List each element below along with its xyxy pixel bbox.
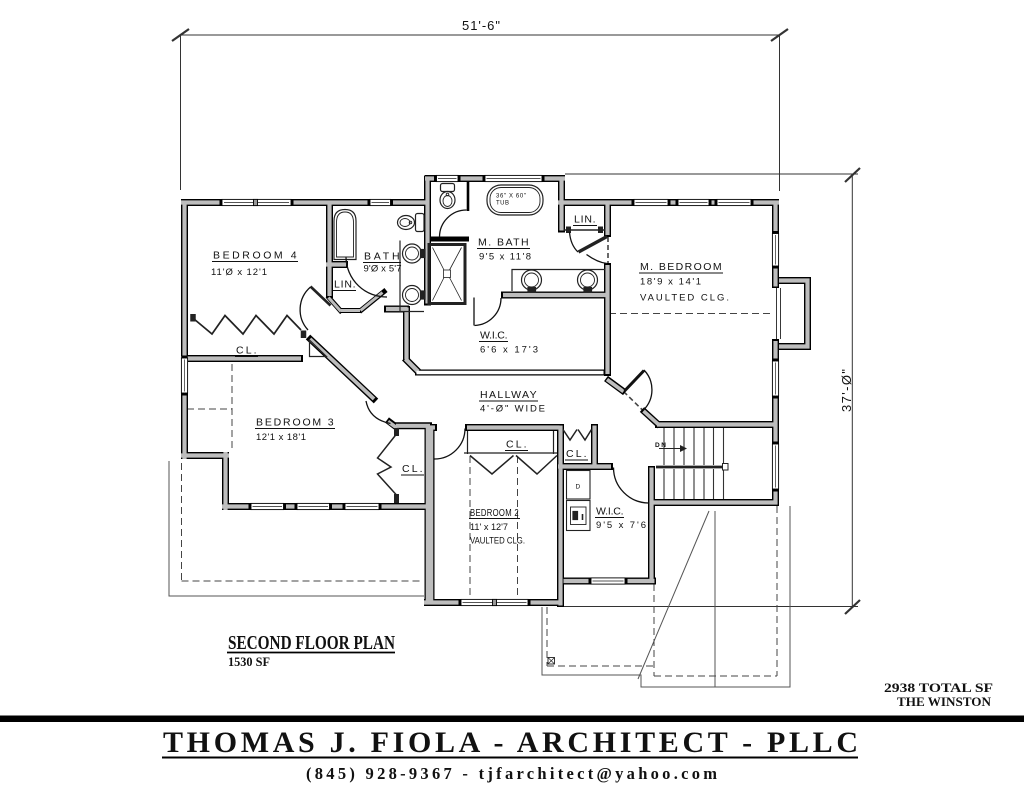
svg-text:CL.: CL. — [236, 345, 257, 357]
svg-text:LIN.: LIN. — [334, 279, 356, 291]
svg-text:THE WINSTON: THE WINSTON — [897, 694, 992, 709]
svg-text:9'Ø x 5'7: 9'Ø x 5'7 — [364, 264, 402, 275]
svg-text:11'Ø x 12'1: 11'Ø x 12'1 — [211, 267, 267, 278]
svg-text:DN: DN — [655, 442, 666, 449]
svg-text:BEDROOM 3: BEDROOM 3 — [256, 417, 334, 429]
svg-text:11' x 12'7: 11' x 12'7 — [470, 522, 508, 533]
svg-text:6'6 x 17'3: 6'6 x 17'3 — [480, 345, 538, 356]
svg-text:CL.: CL. — [402, 463, 423, 475]
svg-text:9'5 x 7'6: 9'5 x 7'6 — [596, 520, 646, 531]
svg-text:SECOND FLOOR PLAN: SECOND FLOOR PLAN — [228, 632, 395, 654]
svg-text:37'-Ø": 37'-Ø" — [839, 369, 854, 412]
svg-text:VAULTED CLG.: VAULTED CLG. — [470, 536, 525, 547]
svg-text:51'-6": 51'-6" — [462, 18, 500, 33]
svg-text:BEDROOM 2: BEDROOM 2 — [470, 507, 519, 519]
svg-text:HALLWAY: HALLWAY — [480, 389, 537, 401]
svg-text:2938 TOTAL SF: 2938 TOTAL SF — [884, 680, 993, 695]
svg-text:W.I.C.: W.I.C. — [480, 330, 508, 342]
svg-text:CL.: CL. — [566, 448, 587, 460]
svg-text:12'1 x 18'1: 12'1 x 18'1 — [256, 432, 306, 443]
svg-text:BEDROOM 4: BEDROOM 4 — [213, 250, 297, 262]
svg-text:W.I.C.: W.I.C. — [596, 506, 624, 518]
svg-text:1530 SF: 1530 SF — [228, 655, 270, 669]
svg-text:LIN.: LIN. — [574, 214, 596, 226]
svg-text:BATH: BATH — [364, 251, 400, 263]
svg-text:(845) 928-9367 - tjfarchitect@: (845) 928-9367 - tjfarchitect@yahoo.com — [306, 764, 717, 783]
svg-text:D: D — [576, 484, 581, 491]
svg-text:18'9 x 14'1: 18'9 x 14'1 — [640, 277, 701, 288]
svg-text:9'5 x 11'8: 9'5 x 11'8 — [479, 252, 531, 263]
svg-text:TUB: TUB — [496, 201, 509, 207]
svg-text:M. BEDROOM: M. BEDROOM — [640, 261, 722, 273]
svg-text:36" X 60": 36" X 60" — [496, 194, 526, 200]
svg-text:M. BATH: M. BATH — [478, 237, 529, 249]
svg-text:CL.: CL. — [506, 439, 527, 451]
